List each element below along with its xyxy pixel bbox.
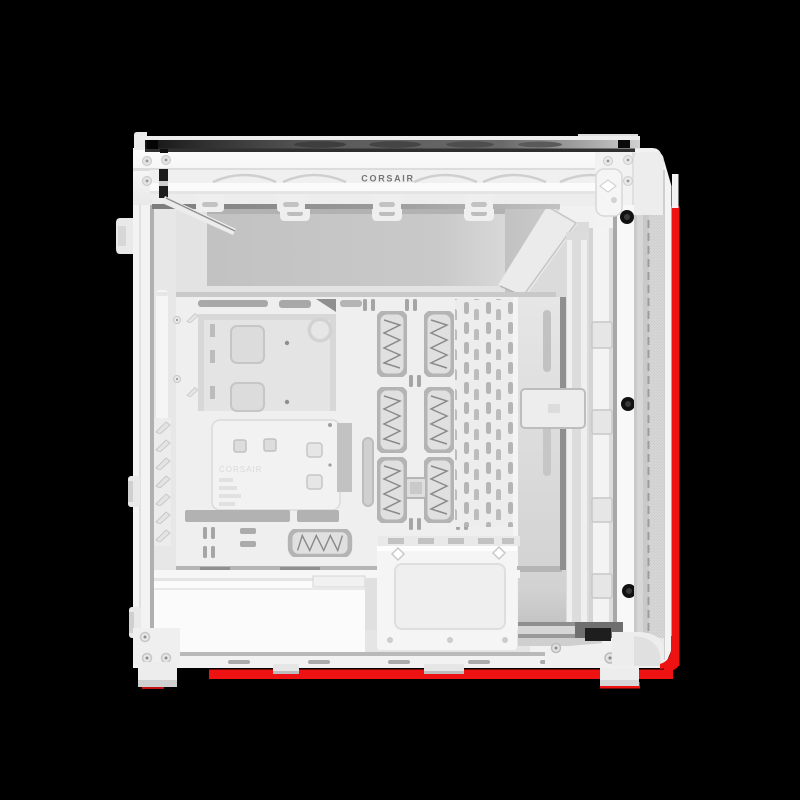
svg-text:CORSAIR: CORSAIR (361, 174, 414, 184)
svg-text:CORSAIR: CORSAIR (219, 465, 262, 474)
